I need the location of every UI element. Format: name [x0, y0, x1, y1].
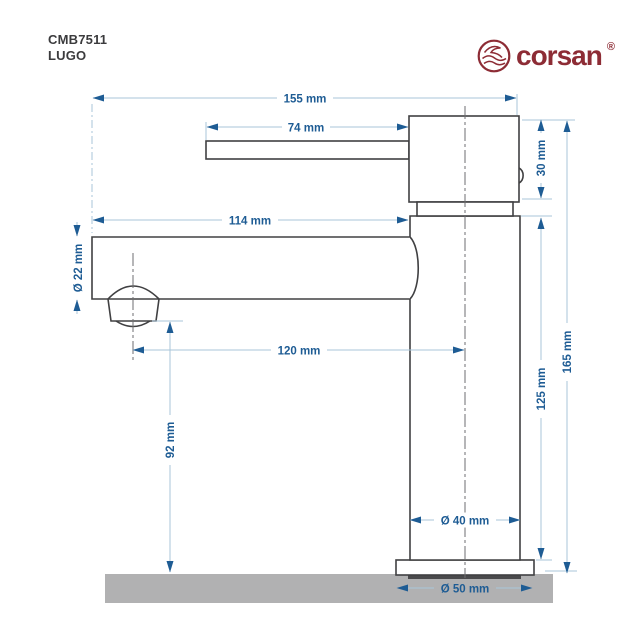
dim-lever-length: 74 mm	[206, 120, 408, 141]
faucet-technical-drawing: 155 mm 74 mm 114 mm Ø 22	[0, 0, 640, 640]
dim-label-body-height: 125 mm	[536, 368, 548, 411]
dim-outlet-height: 92 mm	[152, 321, 183, 572]
dim-label-overall-width: 155 mm	[284, 94, 327, 106]
dim-label-spout-diameter: Ø 22 mm	[73, 244, 85, 293]
dim-label-lever-length: 74 mm	[288, 123, 324, 135]
dim-label-total-height: 165 mm	[562, 331, 574, 374]
dim-label-base-diameter: Ø 50 mm	[441, 584, 490, 596]
dim-label-body-diameter: Ø 40 mm	[441, 516, 490, 528]
product-spec-sheet: CMB7511 LUGO corsan ®	[0, 0, 640, 640]
cartridge-head	[409, 116, 519, 202]
dim-label-head-height: 30 mm	[536, 140, 548, 176]
dim-label-spout-length: 114 mm	[229, 216, 271, 228]
dim-label-spout-reach: 120 mm	[278, 346, 321, 358]
dim-spout-length: 114 mm	[93, 213, 408, 228]
lever-handle	[206, 141, 409, 159]
dim-body-height: 125 mm	[521, 216, 552, 560]
dim-total-height: 165 mm	[545, 121, 577, 573]
dim-spout-diameter: Ø 22 mm	[71, 222, 86, 314]
spout	[92, 237, 410, 299]
dim-label-outlet-height: 92 mm	[165, 422, 177, 458]
